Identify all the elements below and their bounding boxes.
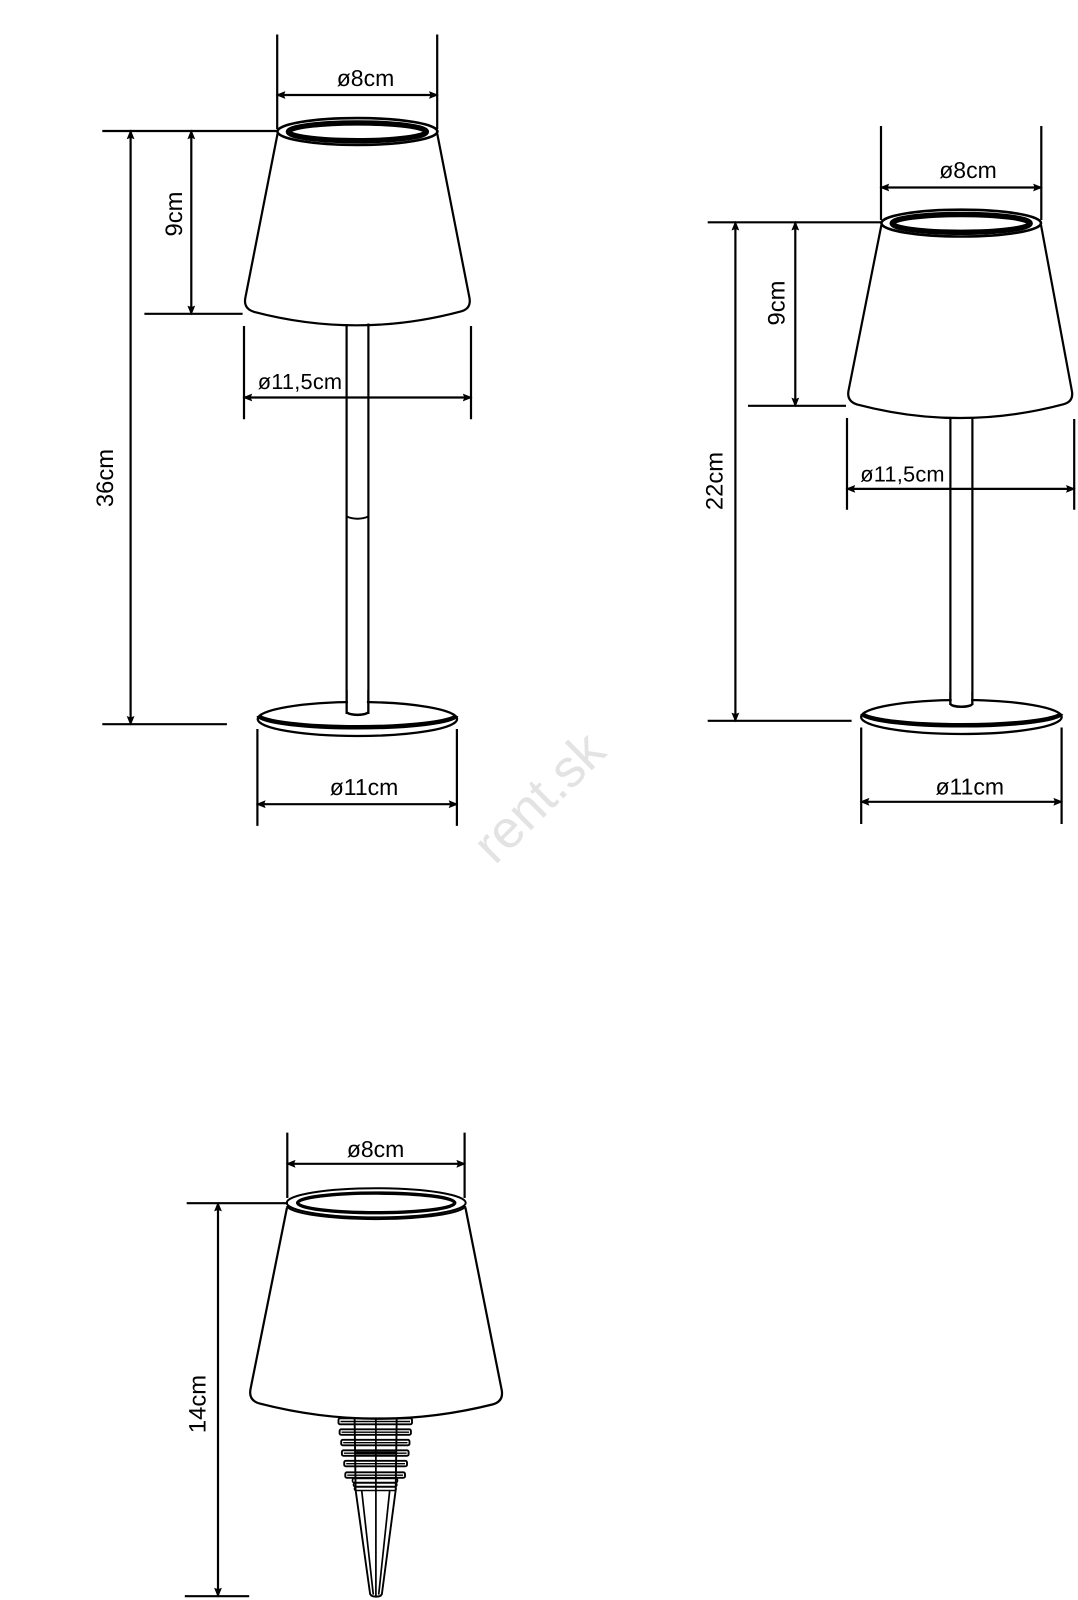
svg-text:ø8cm: ø8cm bbox=[939, 157, 997, 183]
svg-text:ø11cm: ø11cm bbox=[330, 774, 399, 800]
svg-text:rent.sk: rent.sk bbox=[462, 720, 617, 874]
svg-text:9cm: 9cm bbox=[764, 281, 791, 326]
svg-text:ø11,5cm: ø11,5cm bbox=[258, 369, 343, 394]
svg-text:9cm: 9cm bbox=[161, 192, 188, 237]
svg-text:ø11cm: ø11cm bbox=[936, 774, 1005, 800]
svg-text:22cm: 22cm bbox=[701, 452, 728, 510]
svg-text:ø8cm: ø8cm bbox=[347, 1136, 405, 1162]
svg-text:14cm: 14cm bbox=[185, 1375, 212, 1433]
svg-text:36cm: 36cm bbox=[92, 449, 119, 507]
svg-text:ø8cm: ø8cm bbox=[337, 65, 395, 91]
svg-text:ø11,5cm: ø11,5cm bbox=[860, 462, 945, 487]
